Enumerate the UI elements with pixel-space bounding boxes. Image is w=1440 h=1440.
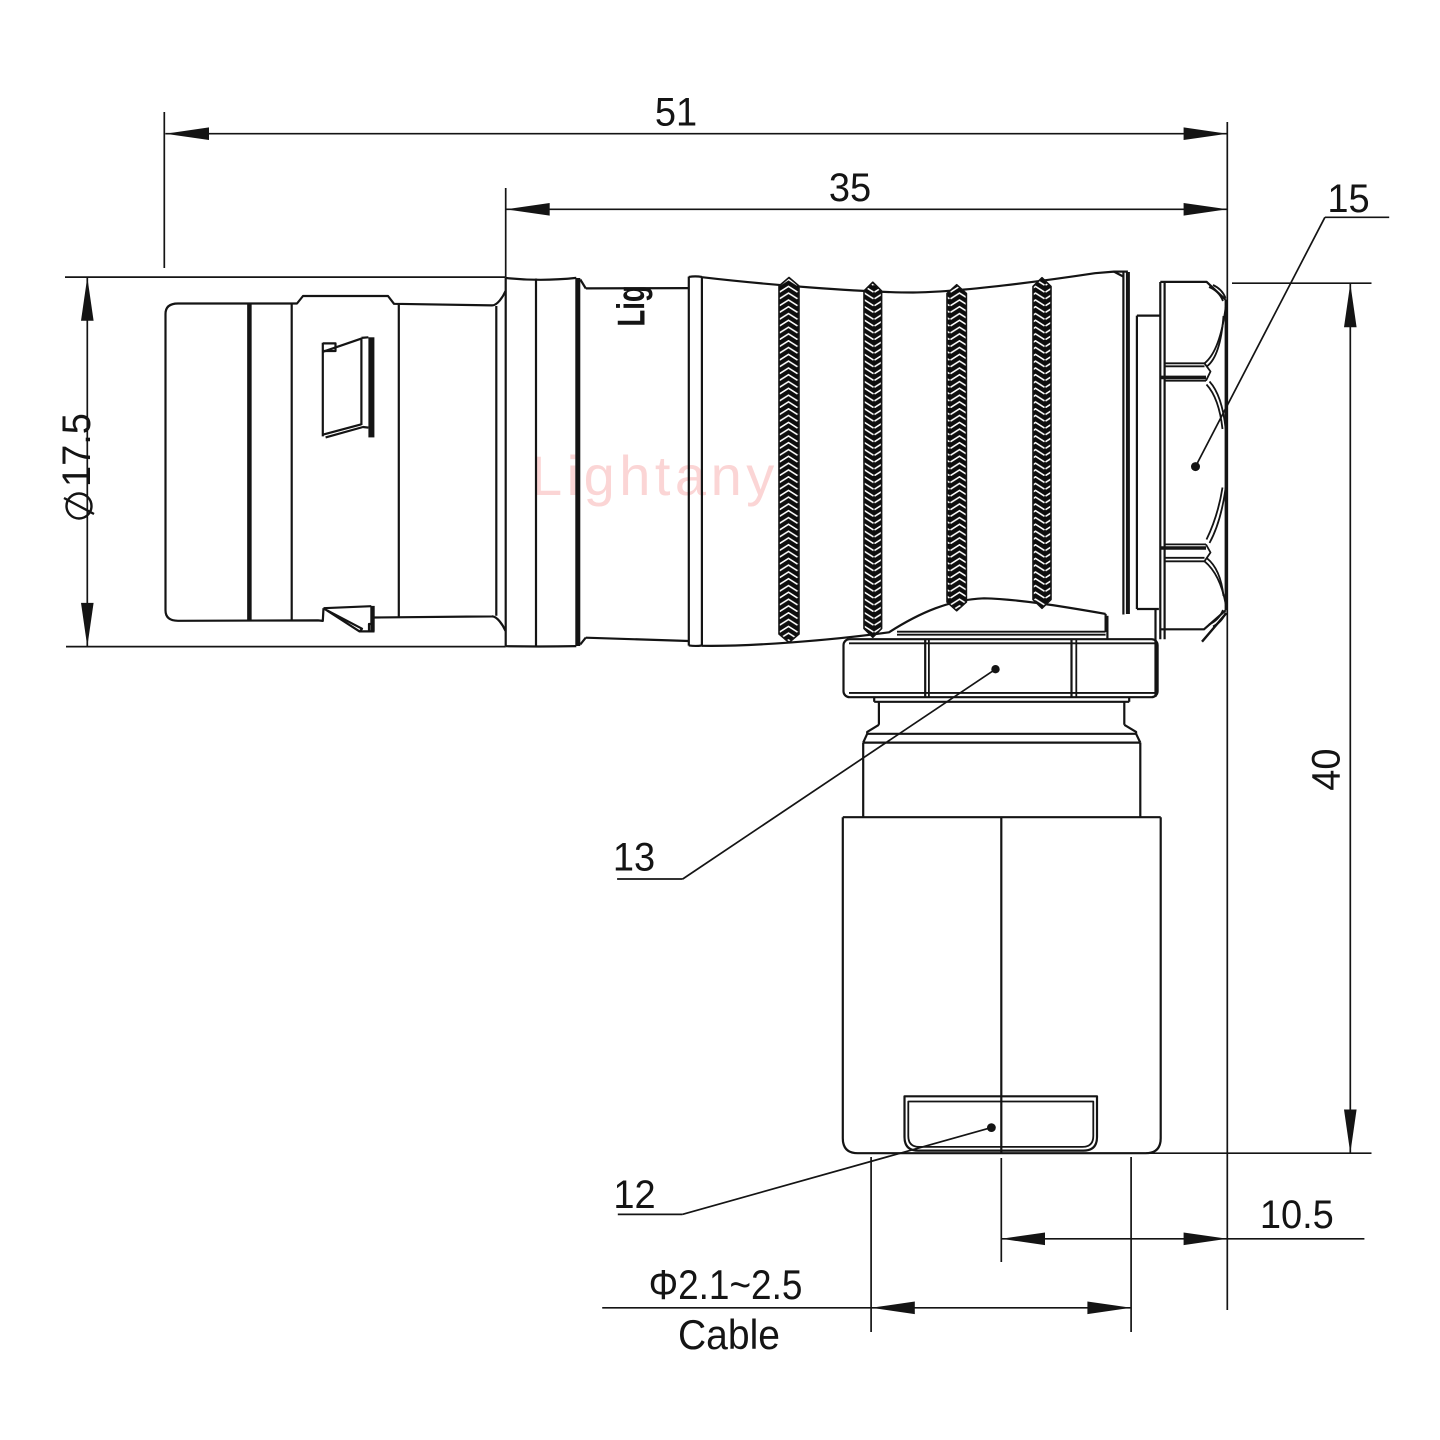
svg-text:10.5: 10.5 [1260, 1193, 1334, 1237]
svg-text:13: 13 [613, 836, 655, 880]
svg-text:17.5: 17.5 [55, 413, 99, 487]
svg-text:15: 15 [1327, 177, 1369, 221]
svg-text:Lightany: Lightany [531, 444, 779, 507]
svg-text:Φ2.1~2.5: Φ2.1~2.5 [649, 1262, 803, 1309]
svg-text:51: 51 [655, 91, 697, 135]
svg-text:Lig: Lig [610, 285, 654, 326]
svg-text:40: 40 [1305, 748, 1349, 790]
svg-text:Cable: Cable [678, 1311, 780, 1359]
svg-text:12: 12 [613, 1173, 655, 1217]
svg-text:35: 35 [829, 166, 871, 210]
